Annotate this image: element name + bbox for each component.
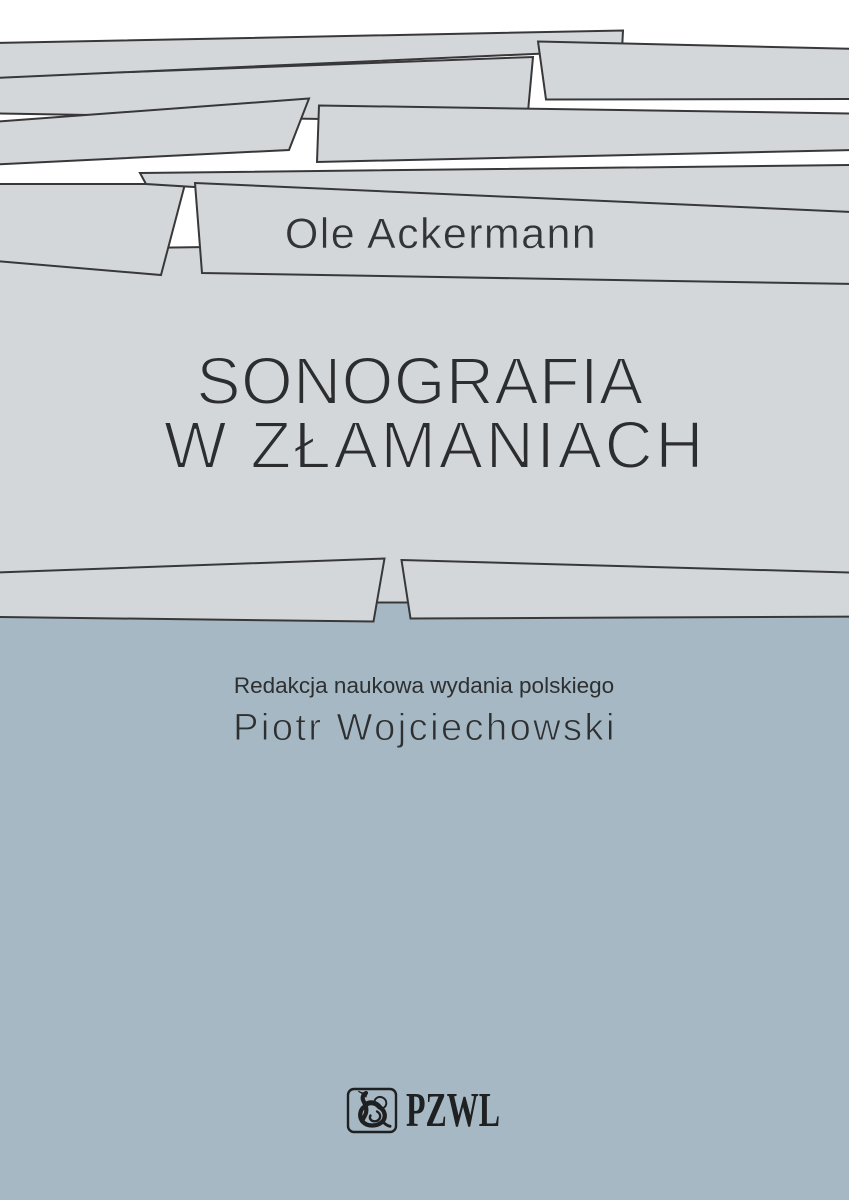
svg-text:PZWL: PZWL <box>406 1084 500 1137</box>
svg-text:W ZŁAMANIACH: W ZŁAMANIACH <box>164 409 706 483</box>
svg-text:SONOGRAFIA: SONOGRAFIA <box>196 345 644 419</box>
svg-text:Redakcja naukowa wydania polsk: Redakcja naukowa wydania polskiego <box>234 673 614 698</box>
svg-text:Ole Ackermann: Ole Ackermann <box>285 210 597 258</box>
svg-text:Piotr Wojciechowski: Piotr Wojciechowski <box>233 707 617 749</box>
